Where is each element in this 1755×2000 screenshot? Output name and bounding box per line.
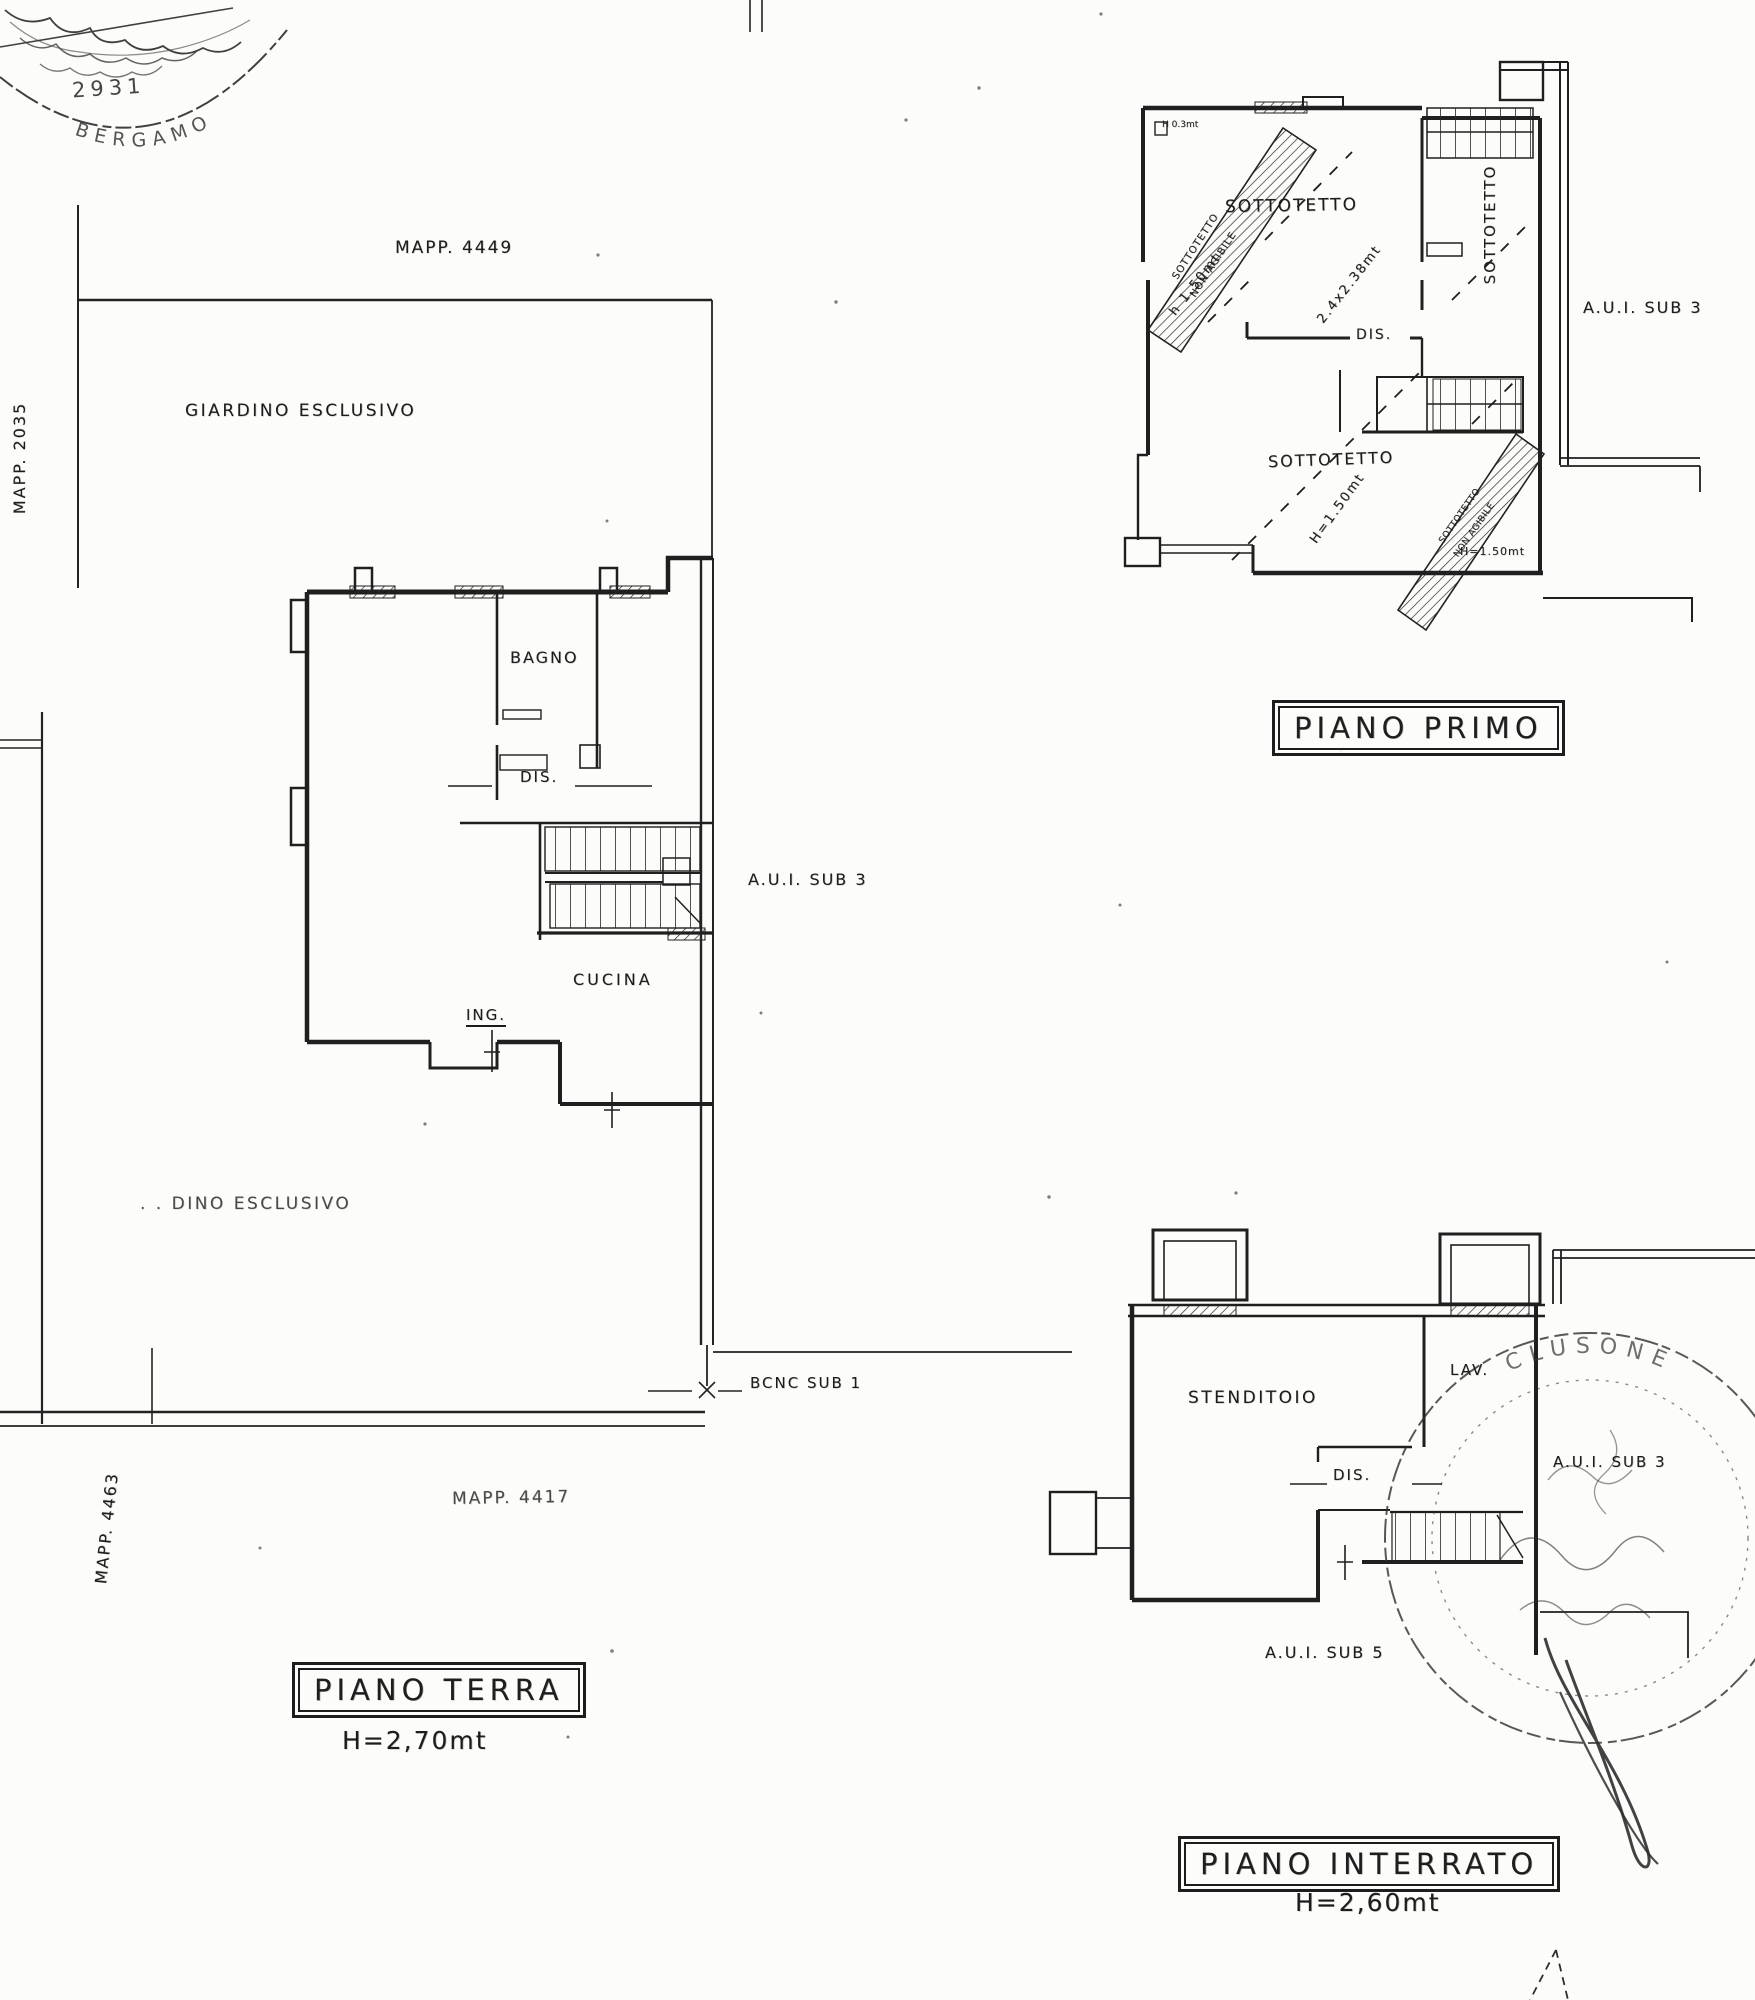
ing-label: ING. (466, 1008, 506, 1027)
giardino-esclusivo-top-label: GIARDINO ESCLUSIVO (185, 403, 416, 420)
dim-corner-label: H 0.3mt (1162, 121, 1198, 130)
svg-text:CLUSONE: CLUSONE (1502, 1334, 1678, 1377)
dim-h150-small-label: H=1.50mt (1460, 546, 1525, 557)
stamp-clusone-text: CLUSONE (1502, 1334, 1678, 1377)
stamp-number: 2931 (71, 73, 146, 102)
basement-walls (1050, 1230, 1755, 1658)
aui-sub5-label: A.U.I. SUB 5 (1265, 1645, 1385, 1661)
ground-floor-title-box: PIANO TERRA (292, 1662, 586, 1718)
sottotetto-lower-label: SOTTOTETTO (1268, 450, 1395, 470)
plan-linework: CLUSONE BERGAMO (0, 0, 1755, 2000)
first-floor-title: PIANO PRIMO (1278, 706, 1559, 750)
aui-sub3-basement-label: A.U.I. SUB 3 (1553, 1455, 1667, 1470)
dis-basement-label: DIS. (1333, 1468, 1371, 1483)
aui-sub3-ground-label: A.U.I. SUB 3 (748, 872, 868, 888)
mapp-4417-label: MAPP. 4417 (452, 1489, 571, 1508)
stenditoio-label: STENDITOIO (1188, 1390, 1318, 1407)
cucina-label: CUCINA (573, 972, 653, 988)
aui-sub3-first-label: A.U.I. SUB 3 (1583, 300, 1703, 316)
first-floor-title-box: PIANO PRIMO (1272, 700, 1565, 756)
mapp-4449-label: MAPP. 4449 (395, 240, 513, 257)
scan-noise (259, 12, 1669, 1738)
scanned-floor-plan-page: CLUSONE BERGAMO 2931 MAPP. 4449 GIARDINO… (0, 0, 1755, 2000)
bagno-label: BAGNO (510, 650, 579, 666)
mapp-2035-label: MAPP. 2035 (12, 398, 28, 518)
bcnc-sub1-label: BCNC SUB 1 (750, 1376, 862, 1391)
lav-label: LAV. (1450, 1363, 1489, 1378)
ground-floor-title: PIANO TERRA (298, 1668, 580, 1712)
giardino-esclusivo-bottom-label: . . DINO ESCLUSIVO (140, 1196, 351, 1213)
dis-first-label: DIS. (1356, 328, 1392, 342)
first-floor-walls (1125, 62, 1700, 622)
basement-height-note: H=2,60mt (1295, 1888, 1441, 1917)
stamp-bergamo-text: BERGAMO (73, 109, 218, 152)
dis-ground-label: DIS. (520, 770, 558, 785)
sottotetto-upper-label: SOTTOTETTO (1225, 197, 1358, 216)
ground-floor-walls (291, 558, 713, 1128)
sottotetto-right-label: SOTTOTETTO (1483, 162, 1498, 287)
basement-title-box: PIANO INTERRATO (1178, 1836, 1560, 1892)
basement-title: PIANO INTERRATO (1184, 1842, 1554, 1886)
ground-floor-height-note: H=2,70mt (342, 1726, 488, 1755)
svg-text:BERGAMO: BERGAMO (73, 109, 218, 152)
registry-stamp-graphics (0, 8, 287, 128)
